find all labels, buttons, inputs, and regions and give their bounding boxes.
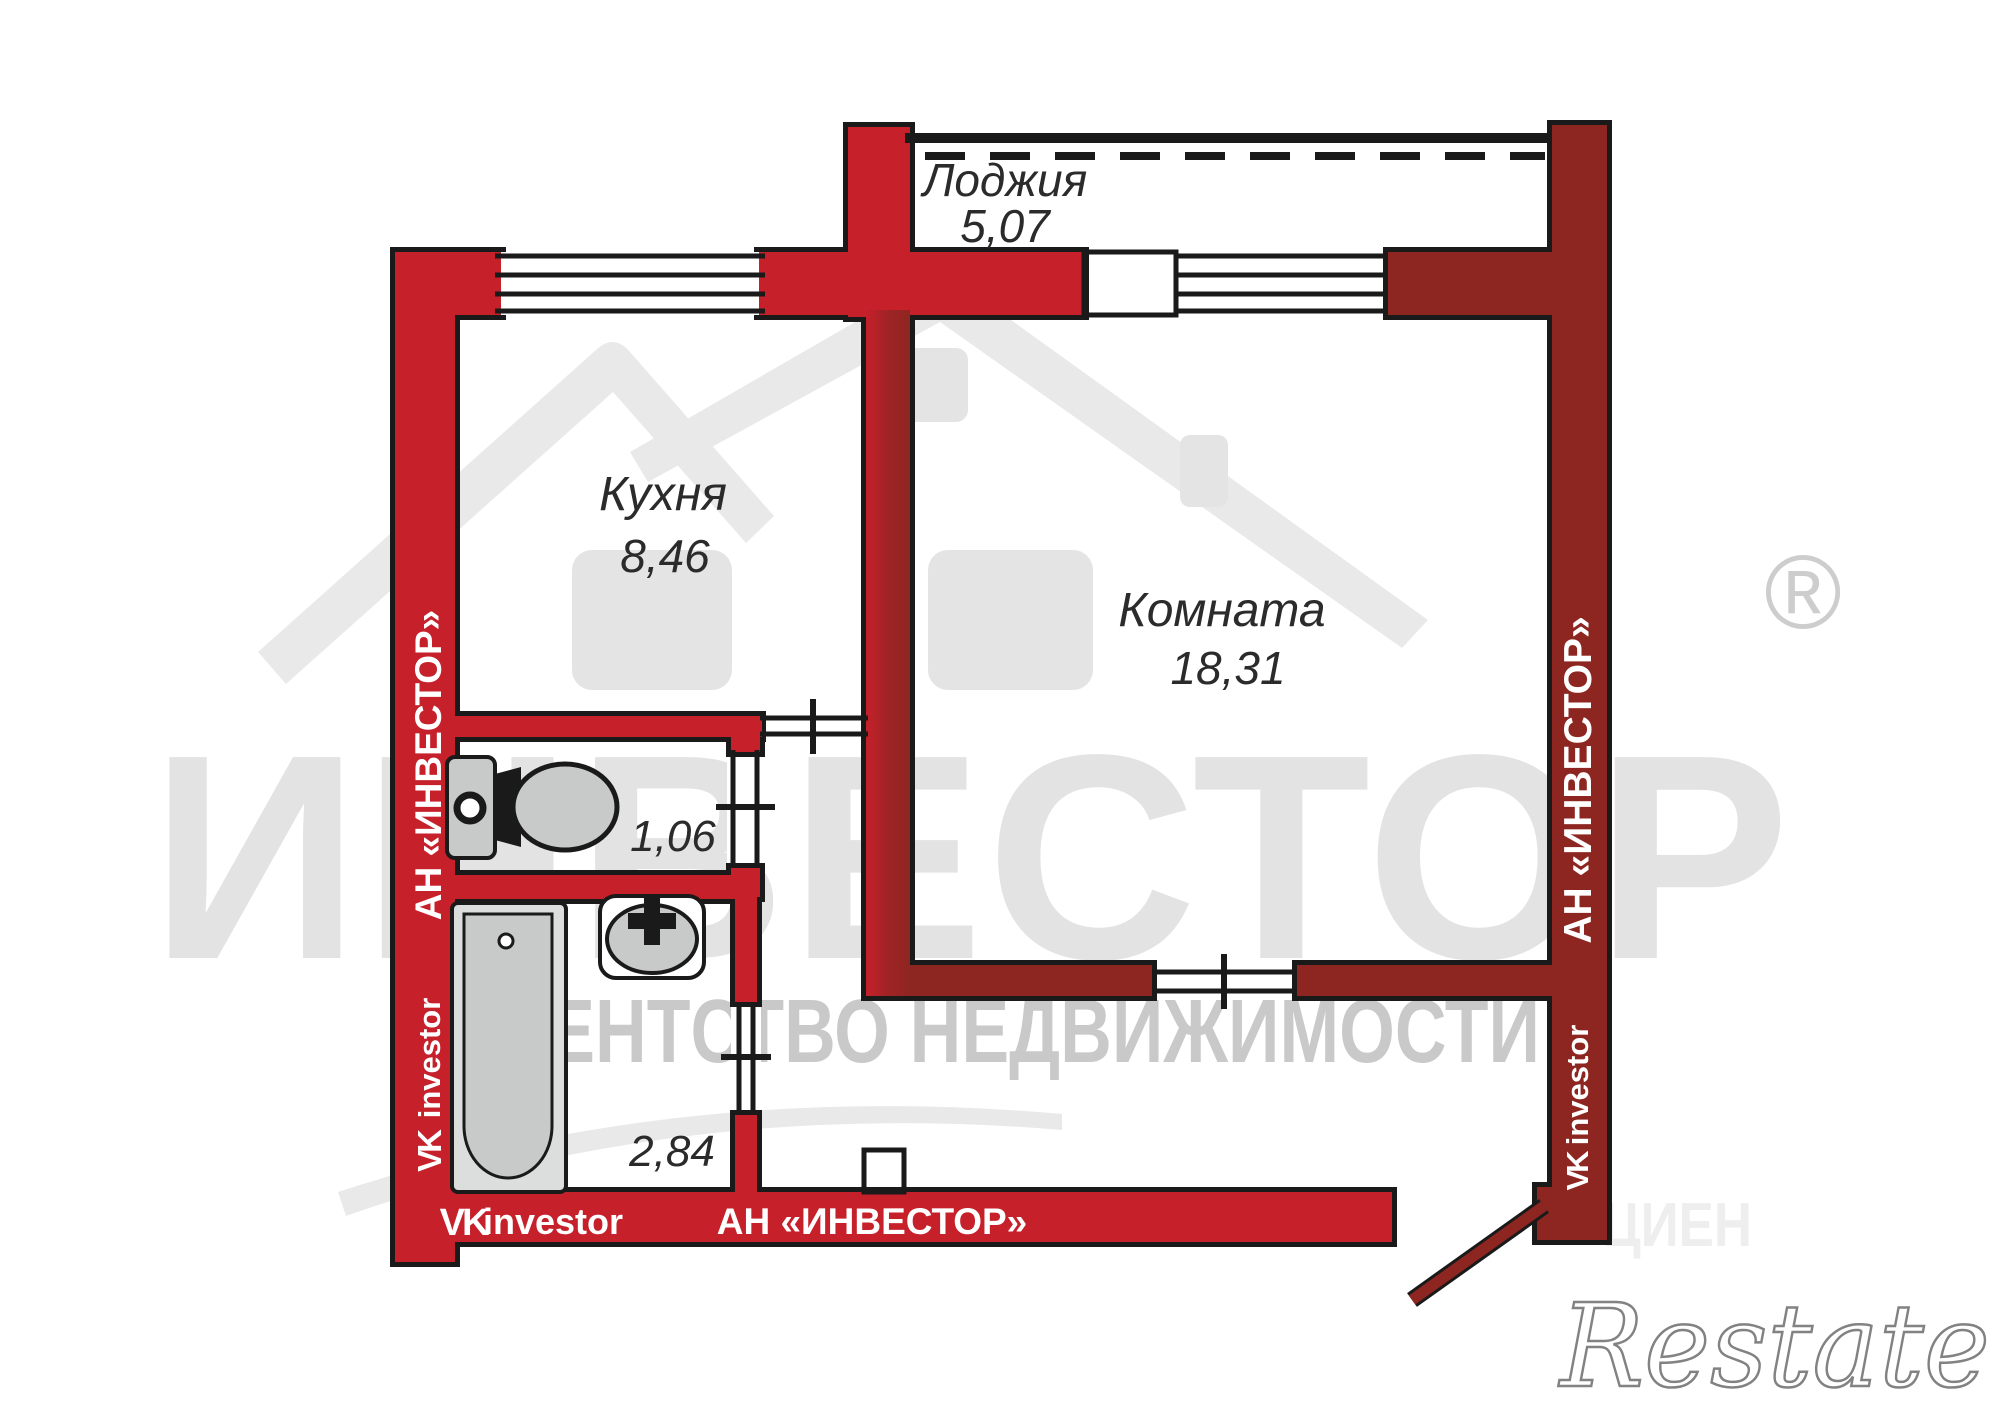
vk-handle-left: investor	[412, 998, 447, 1119]
balcony-area: 5,07	[960, 200, 1051, 252]
agency-name-right: АН «ИНВЕСТОР»	[1557, 616, 1600, 943]
wall-balcony-left	[848, 127, 910, 317]
shaft-niche	[864, 1150, 904, 1192]
floor-plan-page: ИНВЕСТОР ® АГЕНТСТВО НЕДВИЖИМОСТИ ЦИЕН	[0, 0, 2000, 1409]
sink-icon	[600, 896, 704, 978]
kitchen-area: 8,46	[620, 530, 710, 582]
wall-top-room-a	[910, 252, 1084, 315]
bathtub-icon	[452, 903, 566, 1192]
agency-name-left: АН «ИНВЕСТОР»	[408, 610, 449, 921]
vk-icon: VK	[1560, 1150, 1595, 1191]
wall-top-room-b	[1388, 252, 1552, 315]
balcony-label: Лоджия	[920, 154, 1087, 206]
wall-bath-right-b	[735, 1115, 757, 1194]
house-window-icon	[928, 550, 1093, 690]
wall-kitchen-bottom	[455, 716, 762, 737]
balcony-outline	[905, 133, 1552, 156]
wall-divider	[866, 310, 910, 996]
wall-bath-divider	[455, 875, 757, 899]
balcony-door	[1084, 252, 1176, 315]
registered-mark: ®	[1764, 534, 1841, 651]
floor-plan-image: ИНВЕСТОР ® АГЕНТСТВО НЕДВИЖИМОСТИ ЦИЕН	[0, 0, 2000, 1409]
wc-area: 1,06	[630, 812, 716, 861]
agency-name-bottom: АН «ИНВЕСТОР»	[717, 1201, 1028, 1242]
wall-top-kitchen-a	[395, 252, 501, 315]
bathroom-area: 2,84	[628, 1127, 715, 1176]
vk-icon: VK	[411, 1129, 448, 1172]
kitchen-label: Кухня	[599, 468, 727, 521]
vk-handle-bottom: investor	[483, 1201, 623, 1242]
wall-bath-right-a	[735, 899, 757, 1002]
faint-watermark: ЦИЕН	[1602, 1191, 1752, 1260]
house-window-icon	[1180, 435, 1228, 507]
wall-wc-right-a	[731, 733, 760, 752]
balcony-top-wall	[905, 133, 1552, 143]
wall-room-bottom-a	[906, 965, 1152, 996]
living-room-label: Комната	[1118, 584, 1325, 637]
vk-handle-right: investor	[1560, 1025, 1595, 1146]
wall-room-bottom-b	[1297, 965, 1552, 996]
living-room-area: 18,31	[1170, 642, 1285, 694]
restate-logo: Restate	[1558, 1280, 1990, 1409]
toilet-icon	[447, 757, 617, 858]
